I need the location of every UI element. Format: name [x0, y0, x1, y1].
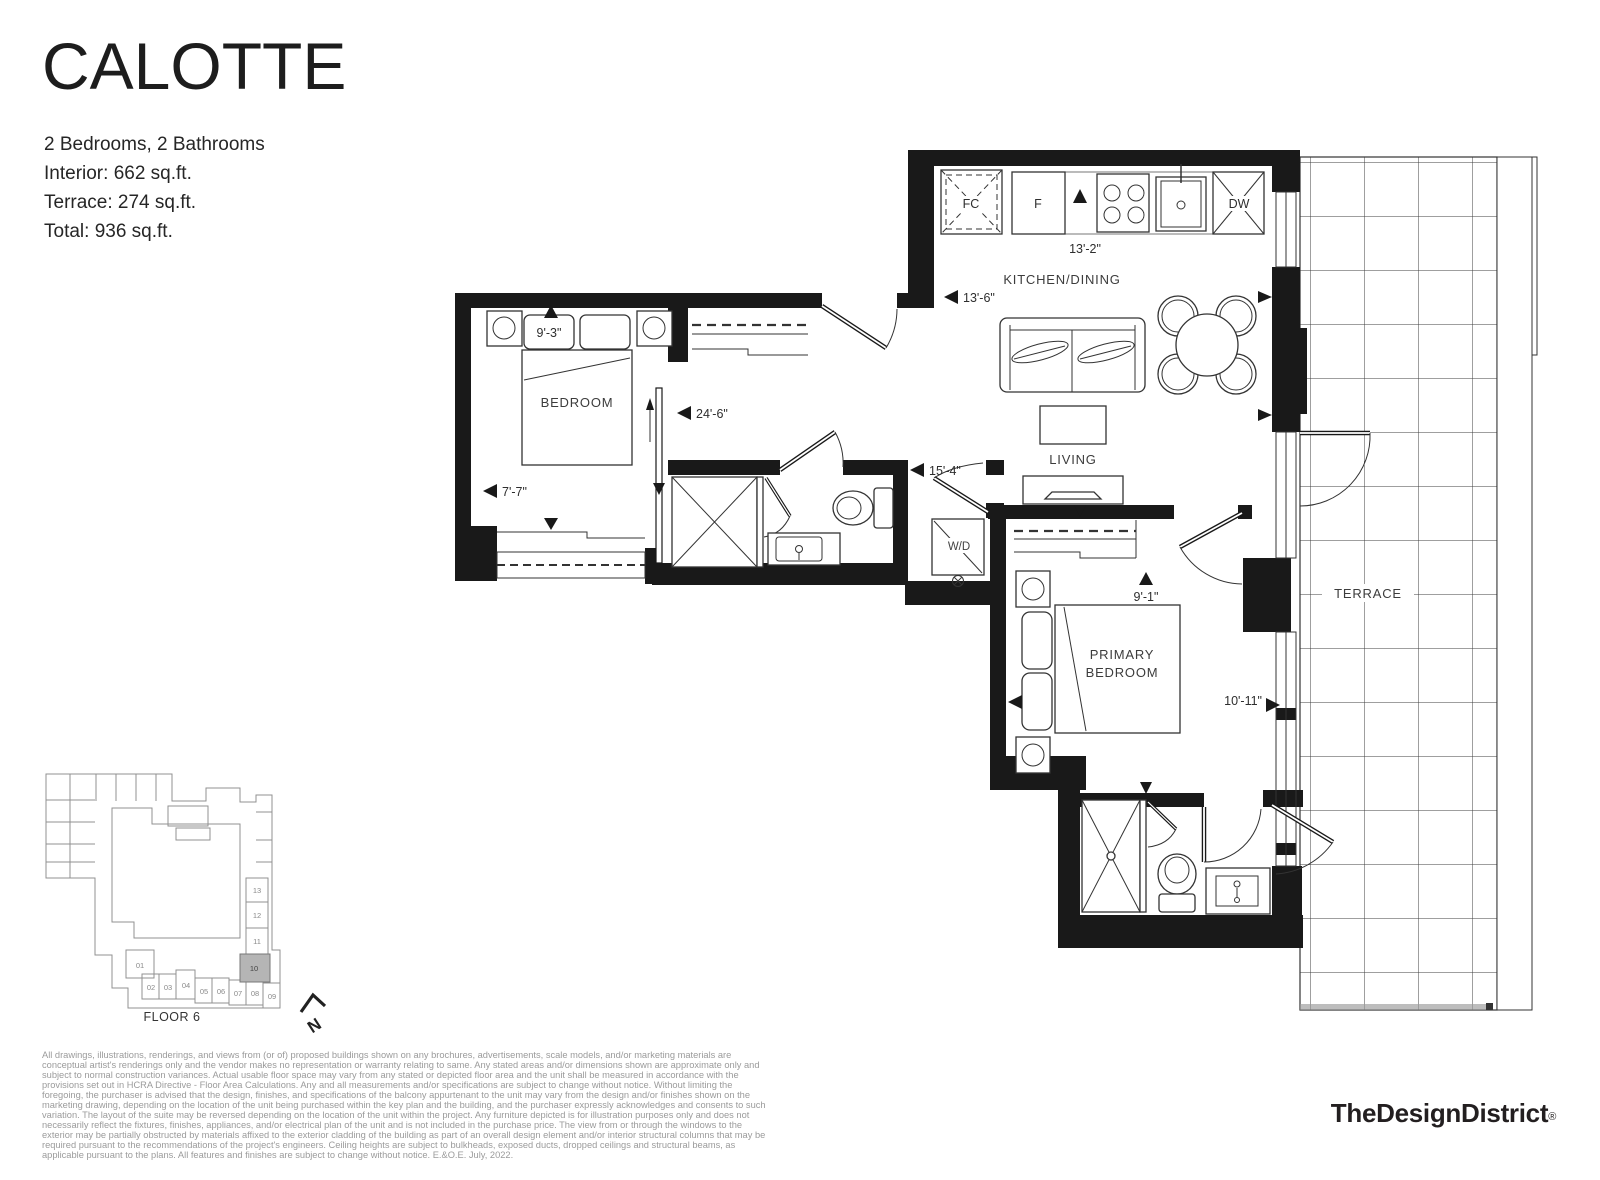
fc-label: FC — [963, 197, 980, 211]
sofa — [1000, 318, 1145, 392]
dishwasher: DW — [1213, 172, 1264, 234]
primary-label-2: BEDROOM — [1086, 665, 1159, 680]
dim-bedroom-width: 7'-7" — [502, 485, 527, 499]
coffee-table — [1040, 406, 1106, 444]
dim-kitchen-counter: 13'-2" — [1069, 242, 1101, 256]
living-room: LIVING — [1000, 296, 1256, 517]
kitchen-dining-label: KITCHEN/DINING — [1003, 272, 1120, 287]
tv-console — [1023, 476, 1123, 504]
dim-bedroom-depth: 9'-3" — [537, 326, 562, 340]
primary-bedroom-door — [1180, 513, 1242, 584]
vanity-sink — [768, 533, 840, 565]
bedroom-sliding-door — [646, 388, 662, 563]
toilet — [833, 488, 893, 528]
ensuite-vanity — [1206, 868, 1270, 914]
living-label: LIVING — [1049, 452, 1096, 467]
dim-marker — [1073, 189, 1087, 203]
registered-mark: ® — [1548, 1111, 1556, 1123]
nightstand — [1016, 571, 1050, 607]
floor-label: FLOOR 6 — [144, 1010, 201, 1024]
nightstand — [637, 311, 672, 346]
terrace-area: TERRACE — [1300, 157, 1537, 1010]
kitchen-sink — [1156, 164, 1206, 231]
stove — [1097, 174, 1149, 232]
dim-kitchen-depth: 13'-6" — [963, 291, 995, 305]
unit-02: 02 — [147, 983, 155, 992]
nightstand — [1016, 737, 1050, 773]
bathroom: 15'-4" — [672, 463, 961, 567]
ensuite-door — [1204, 807, 1261, 862]
unit-12: 12 — [253, 911, 261, 920]
primary-closet — [1014, 520, 1136, 558]
pillow — [580, 315, 630, 349]
dining-table — [1158, 296, 1256, 394]
unit-04: 04 — [182, 981, 190, 990]
pillow — [1022, 612, 1052, 669]
spec-interior: Interior: 662 sq.ft. — [44, 159, 265, 188]
washer-dryer: W/D — [932, 519, 984, 587]
brand-logo: TheDesignDistrict® — [1331, 1098, 1556, 1129]
unit-13: 13 — [253, 886, 261, 895]
unit-06: 06 — [217, 987, 225, 996]
walls — [455, 150, 1307, 948]
nightstand — [487, 311, 522, 346]
north-arrow: N — [301, 995, 325, 1037]
unit-11: 11 — [253, 937, 261, 946]
dw-label: DW — [1229, 197, 1250, 211]
fridge: F — [1012, 172, 1065, 234]
dim-unit-length: 24'-6" — [696, 407, 728, 421]
entry-door — [822, 306, 897, 348]
wd-label: W/D — [948, 541, 970, 553]
legal-disclaimer: All drawings, illustrations, renderings,… — [42, 1050, 766, 1160]
spec-terrace: Terrace: 274 sq.ft. — [44, 188, 265, 217]
dim-primary-depth: 10'-11" — [1224, 694, 1262, 708]
unit-09: 09 — [268, 992, 276, 1001]
fan-coil-unit: FC — [941, 170, 1002, 234]
primary-bedroom: 9'-1" PRIMARY BEDROOM 10'-11" — [1008, 520, 1280, 794]
fridge-label: F — [1034, 197, 1042, 211]
unit-08: 08 — [251, 989, 259, 998]
key-plan: 01 02 03 04 05 06 07 08 09 13 12 11 10 F… — [40, 765, 340, 1040]
keyplan-units: 01 02 03 04 05 06 07 08 09 13 12 11 10 — [126, 878, 280, 1008]
dim-primary-width: 9'-1" — [1134, 590, 1159, 604]
foyer-closet — [692, 325, 808, 355]
bedroom-label: BEDROOM — [541, 395, 614, 410]
ensuite-toilet — [1158, 854, 1196, 912]
page-title: CALOTTE — [42, 28, 346, 104]
unit-01: 01 — [136, 961, 144, 970]
terrace-label: TERRACE — [1334, 586, 1402, 601]
primary-label-1: PRIMARY — [1090, 647, 1155, 662]
unit-specs: 2 Bedrooms, 2 Bathrooms Interior: 662 sq… — [44, 130, 265, 246]
brand-name: TheDesignDistrict — [1331, 1098, 1548, 1128]
bathroom-door — [780, 432, 843, 470]
floorplan: TERRACE — [450, 142, 1545, 1020]
unit-03: 03 — [164, 983, 172, 992]
north-label: N — [304, 1014, 325, 1037]
unit-05: 05 — [200, 987, 208, 996]
spec-bed-bath: 2 Bedrooms, 2 Bathrooms — [44, 130, 265, 159]
unit-07: 07 — [234, 989, 242, 998]
ensuite-bathroom — [1082, 800, 1270, 914]
dim-hall-length: 15'-4" — [929, 464, 961, 478]
spec-total: Total: 936 sq.ft. — [44, 217, 265, 246]
pillow — [1022, 673, 1052, 730]
terrace-edge-hatch — [1300, 1004, 1490, 1010]
unit-10: 10 — [250, 964, 258, 973]
